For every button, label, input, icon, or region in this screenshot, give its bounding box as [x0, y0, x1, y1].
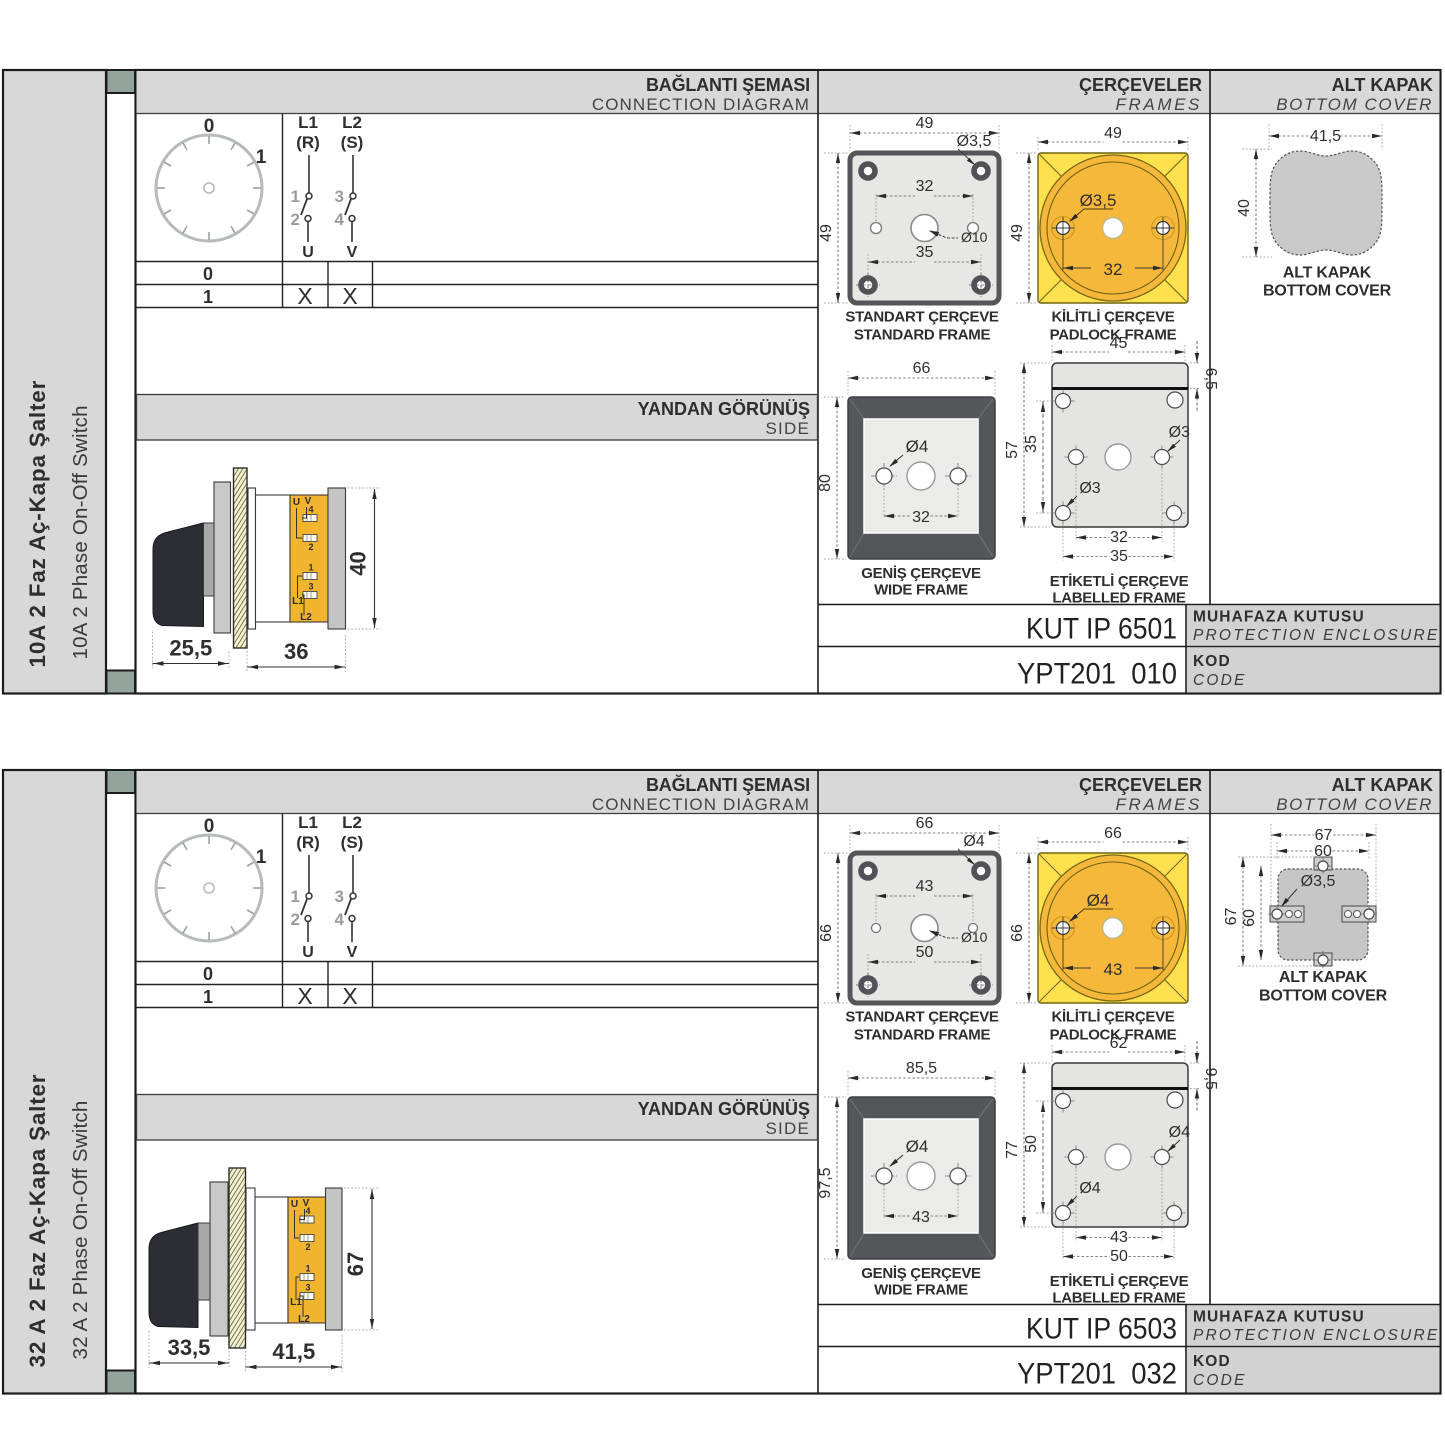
- svg-text:1: 1: [291, 887, 300, 906]
- svg-text:ALT KAPAK: ALT KAPAK: [1279, 969, 1368, 986]
- svg-text:Ø4: Ø4: [1169, 1124, 1190, 1141]
- svg-text:ALT KAPAK: ALT KAPAK: [1283, 265, 1372, 282]
- svg-text:2: 2: [291, 210, 300, 229]
- svg-text:2: 2: [305, 1242, 310, 1252]
- svg-text:SIDE: SIDE: [766, 1119, 810, 1138]
- svg-text:KUT IP 6503: KUT IP 6503: [1026, 1313, 1177, 1346]
- svg-text:4: 4: [335, 910, 345, 929]
- svg-text:L1: L1: [292, 596, 304, 607]
- svg-text:U: U: [302, 244, 314, 261]
- svg-text:Ø4: Ø4: [1079, 1180, 1100, 1197]
- svg-text:3: 3: [308, 582, 313, 592]
- svg-text:32: 32: [916, 178, 934, 195]
- svg-text:CONNECTION DIAGRAM: CONNECTION DIAGRAM: [592, 795, 810, 814]
- svg-text:L2: L2: [342, 813, 362, 832]
- svg-text:1: 1: [203, 287, 213, 307]
- svg-text:STANDART ÇERÇEVE: STANDART ÇERÇEVE: [845, 1009, 999, 1026]
- svg-text:35: 35: [1023, 435, 1040, 453]
- svg-text:ALT KAPAK: ALT KAPAK: [1332, 75, 1433, 95]
- svg-text:0: 0: [203, 264, 213, 284]
- svg-text:PROTECTION ENCLOSURE: PROTECTION ENCLOSURE: [1193, 627, 1439, 644]
- svg-text:33,5: 33,5: [168, 1335, 211, 1360]
- svg-text:YPT201 010: YPT201 010: [1017, 658, 1177, 691]
- svg-text:YPT201 032: YPT201 032: [1017, 1358, 1177, 1391]
- svg-text:FRAMES: FRAMES: [1116, 795, 1202, 814]
- svg-text:25,5: 25,5: [169, 636, 212, 661]
- svg-text:CONNECTION DIAGRAM: CONNECTION DIAGRAM: [592, 95, 810, 114]
- svg-text:9,5: 9,5: [1202, 1068, 1219, 1090]
- svg-text:L2: L2: [342, 113, 362, 132]
- svg-text:2: 2: [308, 542, 313, 552]
- svg-text:KİLİTLİ ÇERÇEVE: KİLİTLİ ÇERÇEVE: [1051, 309, 1174, 326]
- svg-text:Ø3,5: Ø3,5: [1301, 873, 1336, 890]
- svg-text:80: 80: [817, 474, 834, 492]
- svg-text:ETİKETLİ ÇERÇEVE: ETİKETLİ ÇERÇEVE: [1050, 1273, 1189, 1290]
- svg-text:32 A 2 Phase On-Off Switch: 32 A 2 Phase On-Off Switch: [69, 1101, 92, 1360]
- svg-text:45: 45: [1110, 335, 1128, 352]
- svg-text:49: 49: [818, 224, 835, 242]
- svg-text:32: 32: [912, 509, 930, 526]
- svg-text:ÇERÇEVELER: ÇERÇEVELER: [1079, 775, 1202, 795]
- svg-text:(S): (S): [341, 833, 364, 852]
- svg-text:32: 32: [1104, 260, 1123, 279]
- svg-text:49: 49: [916, 115, 934, 132]
- svg-text:Ø3,5: Ø3,5: [1080, 191, 1117, 210]
- svg-text:V: V: [305, 496, 312, 507]
- svg-text:Ø4: Ø4: [1087, 891, 1110, 910]
- svg-text:32 A 2 Faz Aç-Kapa Şalter: 32 A 2 Faz Aç-Kapa Şalter: [25, 1074, 50, 1368]
- svg-text:0: 0: [204, 116, 215, 137]
- svg-text:U: U: [302, 944, 314, 961]
- svg-text:KOD: KOD: [1193, 1353, 1231, 1370]
- svg-text:CODE: CODE: [1193, 672, 1247, 689]
- svg-text:32: 32: [1110, 529, 1128, 546]
- svg-text:0: 0: [203, 964, 213, 984]
- svg-text:1: 1: [203, 987, 213, 1007]
- svg-text:ALT KAPAK: ALT KAPAK: [1332, 775, 1433, 795]
- svg-text:BOTTOM COVER: BOTTOM COVER: [1276, 795, 1433, 814]
- svg-text:66: 66: [1104, 825, 1122, 842]
- svg-text:(S): (S): [341, 133, 364, 152]
- svg-text:WIDE FRAME: WIDE FRAME: [874, 582, 968, 599]
- svg-text:1: 1: [291, 187, 300, 206]
- svg-text:Ø10: Ø10: [961, 229, 988, 245]
- svg-text:0: 0: [204, 816, 215, 837]
- svg-text:36: 36: [284, 639, 308, 664]
- svg-text:STANDARD FRAME: STANDARD FRAME: [854, 327, 991, 344]
- svg-text:66: 66: [1009, 924, 1026, 942]
- svg-text:Ø4: Ø4: [963, 833, 984, 850]
- svg-text:L1: L1: [298, 113, 318, 132]
- svg-text:X: X: [342, 983, 357, 1009]
- svg-text:BAĞLANTI ŞEMASI: BAĞLANTI ŞEMASI: [646, 774, 810, 795]
- svg-text:YANDAN GÖRÜNÜŞ: YANDAN GÖRÜNÜŞ: [638, 1099, 810, 1119]
- svg-text:49: 49: [1009, 224, 1026, 242]
- svg-text:3: 3: [305, 1283, 310, 1293]
- svg-text:67: 67: [343, 1252, 368, 1276]
- svg-text:Ø10: Ø10: [961, 929, 988, 945]
- svg-text:U: U: [293, 497, 300, 508]
- svg-text:35: 35: [1110, 548, 1128, 565]
- svg-text:Ø4: Ø4: [906, 437, 929, 456]
- svg-text:SIDE: SIDE: [766, 419, 810, 438]
- svg-text:V: V: [303, 1198, 310, 1209]
- svg-text:X: X: [342, 283, 357, 309]
- svg-text:1: 1: [305, 1264, 310, 1274]
- svg-text:1: 1: [256, 847, 267, 868]
- svg-text:Ø3: Ø3: [1079, 480, 1100, 497]
- svg-text:MUHAFAZA KUTUSU: MUHAFAZA KUTUSU: [1193, 1309, 1365, 1326]
- svg-text:V: V: [347, 944, 358, 961]
- svg-text:L2: L2: [300, 612, 312, 623]
- svg-text:Ø4: Ø4: [906, 1137, 929, 1156]
- svg-text:57: 57: [1004, 441, 1021, 459]
- svg-text:77: 77: [1004, 1141, 1021, 1159]
- svg-text:BOTTOM COVER: BOTTOM COVER: [1263, 283, 1392, 300]
- svg-text:ÇERÇEVELER: ÇERÇEVELER: [1079, 75, 1202, 95]
- svg-text:43: 43: [916, 878, 934, 895]
- svg-text:X: X: [297, 983, 312, 1009]
- svg-text:WIDE FRAME: WIDE FRAME: [874, 1282, 968, 1299]
- svg-text:4: 4: [335, 210, 345, 229]
- svg-text:1: 1: [308, 563, 313, 573]
- svg-text:40: 40: [346, 551, 371, 575]
- svg-text:62: 62: [1110, 1035, 1128, 1052]
- svg-text:3: 3: [335, 187, 344, 206]
- svg-text:66: 66: [916, 815, 934, 832]
- svg-text:V: V: [347, 244, 358, 261]
- svg-text:41,5: 41,5: [1310, 128, 1341, 145]
- svg-text:43: 43: [1110, 1229, 1128, 1246]
- svg-text:50: 50: [1110, 1248, 1128, 1265]
- svg-text:40: 40: [1236, 199, 1253, 217]
- svg-text:KOD: KOD: [1193, 653, 1231, 670]
- svg-text:GENİŞ ÇERÇEVE: GENİŞ ÇERÇEVE: [861, 565, 981, 582]
- svg-text:10A 2 Phase On-Off Switch: 10A 2 Phase On-Off Switch: [69, 405, 92, 659]
- svg-text:66: 66: [818, 924, 835, 942]
- svg-text:FRAMES: FRAMES: [1116, 95, 1202, 114]
- svg-text:3: 3: [335, 887, 344, 906]
- svg-text:L1: L1: [298, 813, 318, 832]
- svg-text:STANDARD FRAME: STANDARD FRAME: [854, 1027, 991, 1044]
- svg-text:MUHAFAZA KUTUSU: MUHAFAZA KUTUSU: [1193, 609, 1365, 626]
- svg-text:1: 1: [256, 147, 267, 168]
- svg-text:CODE: CODE: [1193, 1372, 1247, 1389]
- svg-text:STANDART ÇERÇEVE: STANDART ÇERÇEVE: [845, 309, 999, 326]
- svg-text:BAĞLANTI ŞEMASI: BAĞLANTI ŞEMASI: [646, 74, 810, 95]
- svg-text:ETİKETLİ ÇERÇEVE: ETİKETLİ ÇERÇEVE: [1050, 573, 1189, 590]
- svg-text:49: 49: [1104, 125, 1122, 142]
- svg-text:10A 2 Faz Aç-Kapa Şalter: 10A 2 Faz Aç-Kapa Şalter: [25, 380, 50, 668]
- svg-text:97,5: 97,5: [817, 1167, 834, 1198]
- svg-text:35: 35: [916, 244, 934, 261]
- svg-text:85,5: 85,5: [906, 1060, 937, 1077]
- svg-text:BOTTOM COVER: BOTTOM COVER: [1276, 95, 1433, 114]
- svg-text:60: 60: [1241, 909, 1258, 927]
- svg-text:43: 43: [912, 1209, 930, 1226]
- svg-text:X: X: [297, 283, 312, 309]
- svg-text:(R): (R): [296, 133, 320, 152]
- svg-text:(R): (R): [296, 833, 320, 852]
- svg-text:67: 67: [1223, 908, 1240, 926]
- svg-text:L2: L2: [298, 1314, 310, 1325]
- svg-text:43: 43: [1104, 960, 1123, 979]
- svg-text:67: 67: [1315, 827, 1333, 844]
- svg-text:KUT IP 6501: KUT IP 6501: [1026, 613, 1177, 646]
- svg-text:KİLİTLİ ÇERÇEVE: KİLİTLİ ÇERÇEVE: [1051, 1009, 1174, 1026]
- svg-text:GENİŞ ÇERÇEVE: GENİŞ ÇERÇEVE: [861, 1265, 981, 1282]
- svg-text:50: 50: [1023, 1135, 1040, 1153]
- svg-text:Ø3: Ø3: [1169, 424, 1190, 441]
- svg-text:41,5: 41,5: [272, 1339, 315, 1364]
- svg-text:L1: L1: [290, 1297, 302, 1308]
- svg-text:YANDAN GÖRÜNÜŞ: YANDAN GÖRÜNÜŞ: [638, 399, 810, 419]
- svg-text:60: 60: [1314, 843, 1332, 860]
- svg-text:PROTECTION ENCLOSURE: PROTECTION ENCLOSURE: [1193, 1327, 1439, 1344]
- svg-text:U: U: [291, 1199, 298, 1210]
- svg-text:2: 2: [291, 910, 300, 929]
- svg-text:BOTTOM COVER: BOTTOM COVER: [1259, 988, 1388, 1005]
- svg-text:50: 50: [916, 944, 934, 961]
- svg-text:Ø3,5: Ø3,5: [957, 133, 992, 150]
- svg-text:66: 66: [913, 360, 931, 377]
- svg-text:6,5: 6,5: [1202, 368, 1219, 390]
